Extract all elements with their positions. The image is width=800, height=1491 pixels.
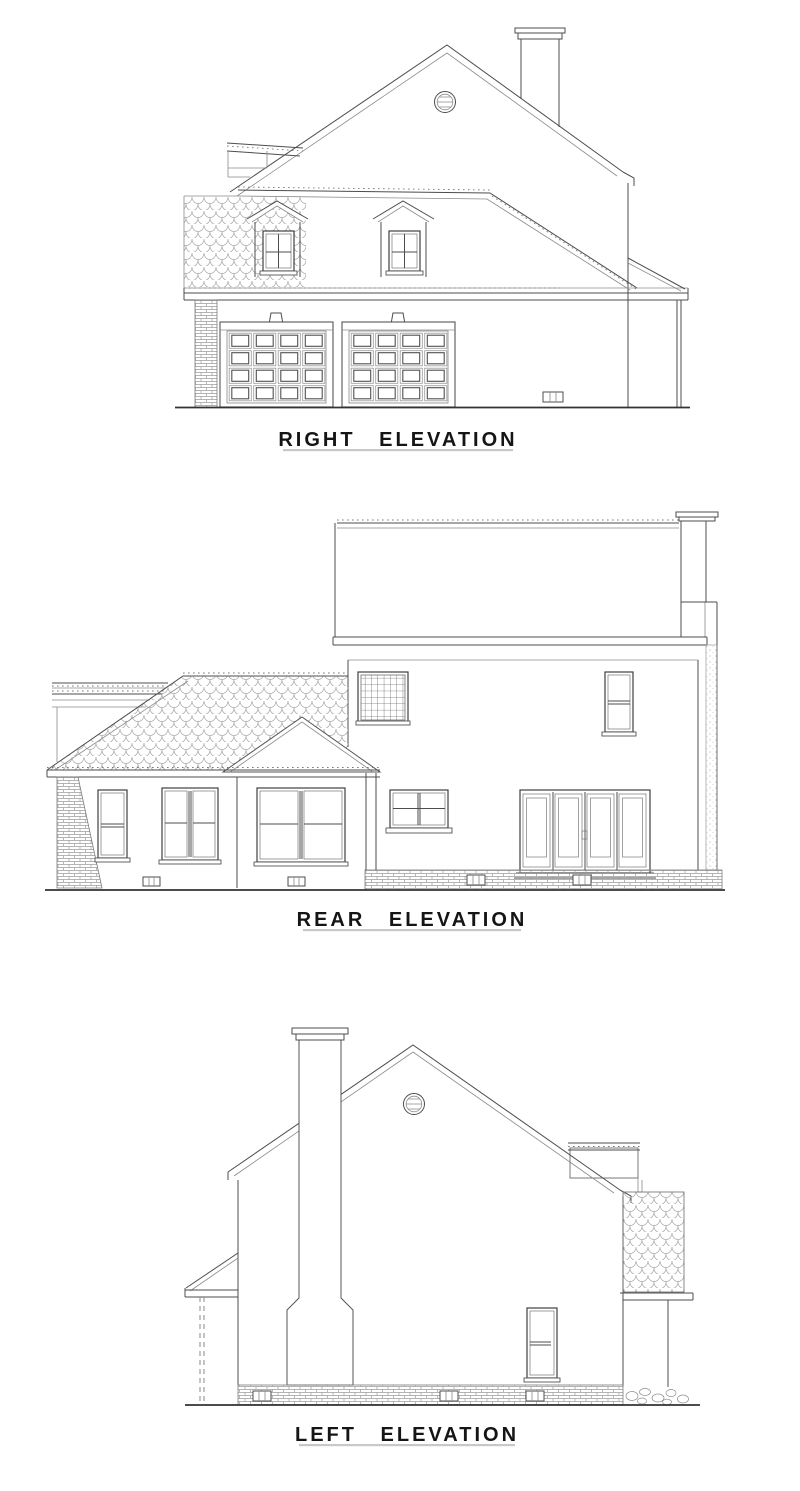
gabled-dormer-right	[373, 201, 434, 277]
french-doors	[514, 790, 656, 878]
round-gable-vent	[435, 92, 456, 113]
shingle-roof-side	[620, 1192, 693, 1387]
bay-roof-edge	[227, 143, 303, 177]
foundation-vent	[526, 1391, 544, 1401]
window-pair	[159, 788, 221, 864]
foundation-vent	[143, 877, 160, 886]
brick-foundation	[238, 1385, 623, 1405]
round-gable-vent	[404, 1094, 425, 1115]
eave-band	[184, 288, 688, 300]
label-underline	[303, 929, 521, 931]
corner-board	[366, 773, 376, 870]
brick-pier	[195, 300, 217, 407]
left-elevation-label: LEFT ELEVATION	[295, 1424, 519, 1446]
porch-post-dashed	[200, 1297, 204, 1403]
blueprint-sheet: RIGHT ELEVATION REAR ELEVATION LEFT ELEV…	[0, 0, 800, 1491]
foundation-vent	[253, 1391, 271, 1401]
tall-exterior-chimney	[287, 1028, 353, 1385]
right-elevation-label: RIGHT ELEVATION	[278, 429, 517, 451]
double-hung-window	[524, 1308, 560, 1382]
foundation-vent	[440, 1391, 458, 1401]
foundation-vent	[543, 392, 563, 402]
garage-door-left	[220, 313, 333, 407]
garage-door-right	[342, 313, 455, 407]
side-porch-roof	[628, 258, 685, 407]
foundation-vent	[288, 877, 305, 886]
elevations-drawing: RIGHT ELEVATION REAR ELEVATION LEFT ELEV…	[0, 0, 800, 1491]
right-elevation-drawing	[175, 28, 690, 408]
label-underline	[299, 1444, 515, 1446]
upper-double-hung-window	[602, 672, 636, 736]
exterior-chimney	[676, 512, 718, 870]
window-pair-large	[254, 788, 348, 866]
left-elevation-drawing	[185, 1028, 700, 1405]
rear-elevation-drawing	[45, 512, 725, 890]
lattice-window	[356, 672, 410, 725]
window-single	[95, 790, 130, 862]
foundation-vent	[467, 875, 485, 885]
brick-foundation	[365, 870, 722, 890]
porch-roof	[185, 1253, 238, 1403]
brick-pier	[57, 777, 102, 888]
label-underline	[283, 449, 513, 451]
shed-dormer-side	[568, 1143, 642, 1192]
grid-window	[386, 790, 452, 833]
rear-elevation-label: REAR ELEVATION	[297, 909, 528, 931]
two-story-roof	[333, 520, 707, 660]
stone-rubble	[626, 1389, 689, 1405]
foundation-vent	[573, 875, 591, 885]
